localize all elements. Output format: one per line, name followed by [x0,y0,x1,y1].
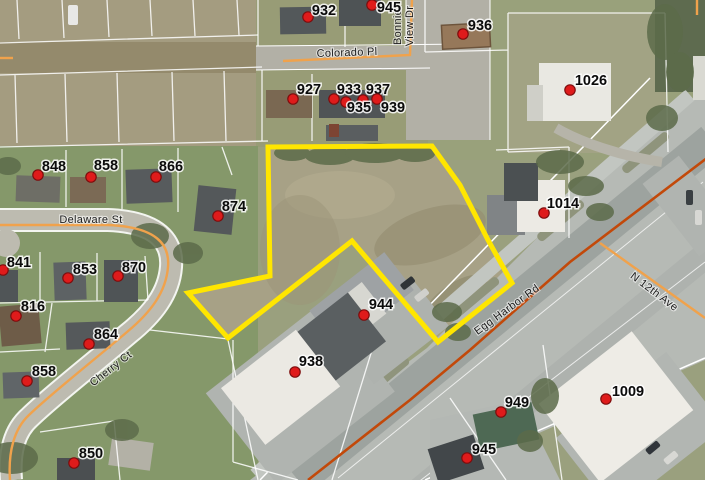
building [693,56,705,100]
parcel-dot [359,310,369,320]
parcel-number-label: 850 [79,446,103,462]
parcel-number-label: 864 [94,327,118,343]
street-label-view-dr: View Dr [404,6,416,46]
building [329,124,339,137]
parcel-number-label: 858 [94,158,118,174]
building [504,163,538,201]
parcel-number-label: 866 [159,159,183,175]
parcel-number-label: 927 [297,82,321,98]
parcel-number-label: 1014 [547,196,579,212]
parcel-dot [565,85,575,95]
parcel-number-label: 853 [73,262,97,278]
parcel-number-label: 932 [312,3,336,19]
parcel-number-label: 858 [32,364,56,380]
parcel-dot [11,311,21,321]
parcel-dot [69,458,79,468]
parcel-dot [462,453,472,463]
parcel-dot [367,0,377,10]
parcel-number-label: 939 [381,100,405,116]
parcel-number-label: 945 [377,0,401,16]
parcel-dot [22,376,32,386]
parcel-dot [84,339,94,349]
parcel-number-label: 945 [472,442,496,458]
parcel-number-label: 1026 [575,73,607,89]
parcel-number-label: 938 [299,354,323,370]
parcel-dot [458,29,468,39]
parcel-number-label: 936 [468,18,492,34]
parcel-number-label: 944 [369,297,393,313]
map-canvas[interactable]: Colorado PlBonnieView DrDelaware StCherr… [0,0,705,480]
parcel-number-label: 933 [337,82,361,98]
building [527,85,543,121]
parcel-dot [601,394,611,404]
parcel-number-label: 841 [7,255,31,271]
street-label-colorado-pl: Colorado Pl [316,46,377,60]
street-label-delaware-st: Delaware St [59,214,122,226]
parcel-number-label: 935 [347,100,371,116]
parcel-number-label: 848 [42,159,66,175]
parcel-number-label: 874 [222,199,246,215]
parcel-number-label: 816 [21,299,45,315]
parcel-dot [63,273,73,283]
parcel-number-label: 870 [122,260,146,276]
parcel-number-label: 949 [505,395,529,411]
parcel-number-label: 1009 [612,384,644,400]
